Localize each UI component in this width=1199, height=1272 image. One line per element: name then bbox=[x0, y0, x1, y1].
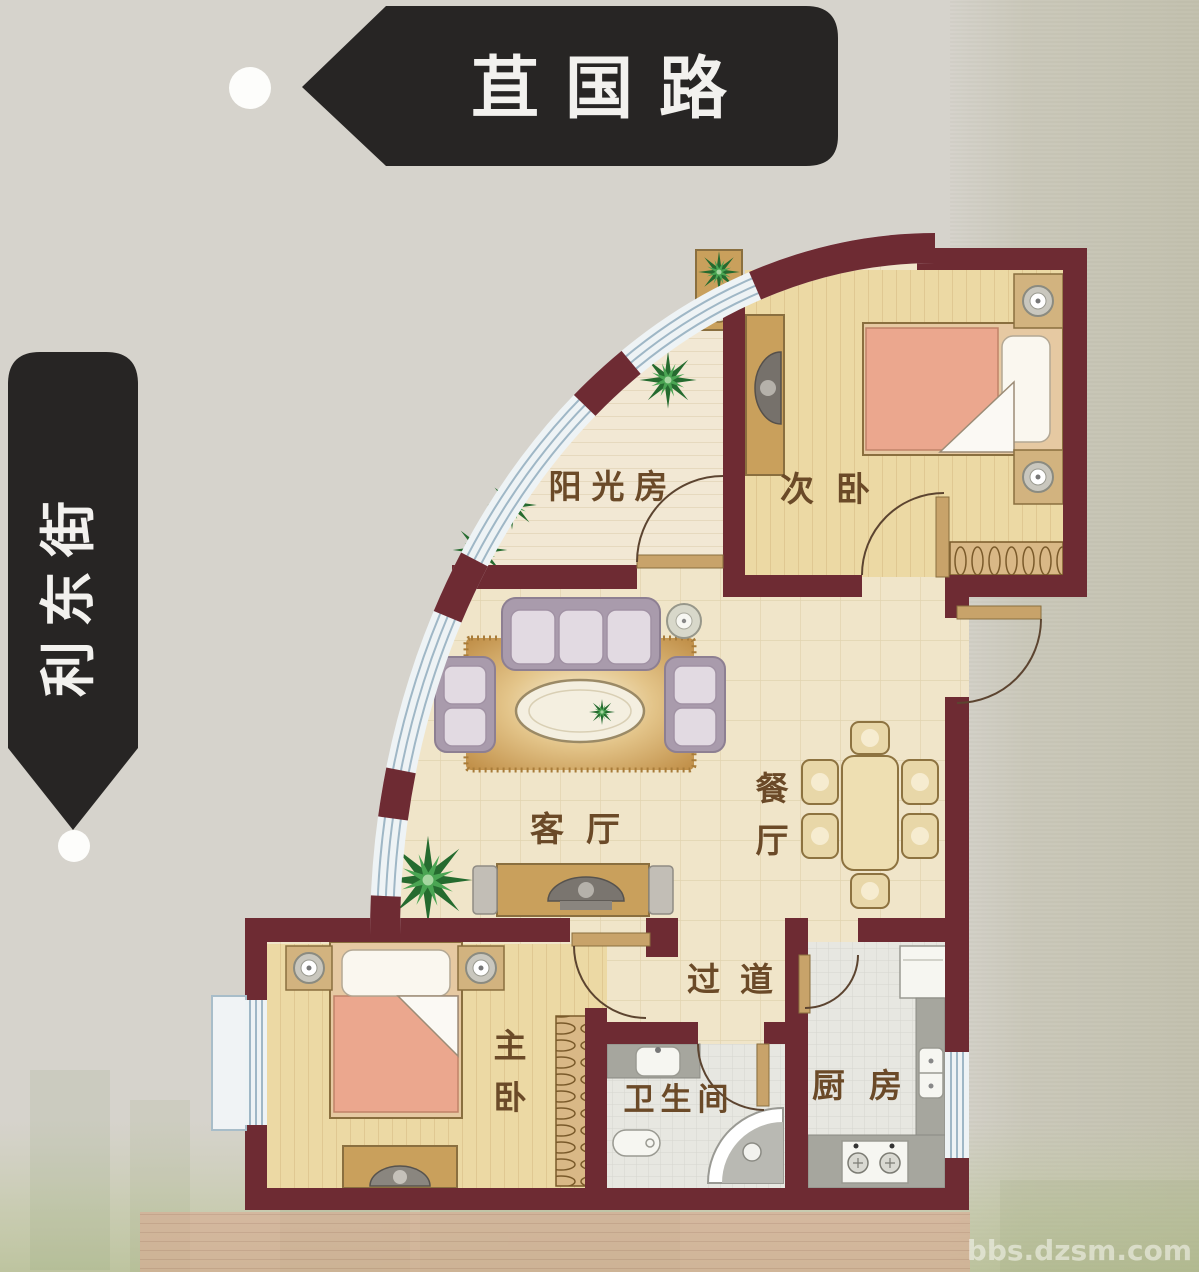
tv-cabinet-second-bedroom bbox=[746, 315, 784, 475]
wall-south bbox=[245, 1188, 969, 1210]
wall bbox=[945, 575, 1087, 597]
speaker-right bbox=[649, 866, 673, 914]
wall-master-east bbox=[585, 1008, 607, 1188]
faucet-icon bbox=[655, 1047, 661, 1053]
wall bbox=[1063, 248, 1087, 597]
room-label-second-bedroom: 次卧 bbox=[780, 470, 892, 510]
bed-master bbox=[330, 942, 462, 1118]
room-label-kitchen: 厨房 bbox=[812, 1066, 926, 1105]
sofa-three-seat bbox=[502, 598, 660, 670]
stove bbox=[842, 1141, 908, 1183]
wall bbox=[245, 935, 267, 1000]
dining-table bbox=[842, 756, 898, 870]
side-table bbox=[667, 604, 701, 638]
wall bbox=[945, 697, 969, 1052]
lamp-icon bbox=[294, 953, 324, 983]
wall bbox=[245, 1125, 267, 1210]
tv-stand-living bbox=[497, 864, 649, 916]
watermark: bbs.dzsm.com bbox=[967, 1234, 1192, 1267]
wall-sunroom-divider bbox=[723, 290, 745, 577]
floorplan-image: 苴国路 利东街 bbox=[0, 0, 1199, 1272]
sofa-left bbox=[435, 657, 495, 752]
wardrobe-second-bedroom bbox=[950, 542, 1063, 575]
wardrobe-master bbox=[556, 1016, 586, 1186]
wall bbox=[764, 1022, 785, 1044]
room-label-living-room: 客厅 bbox=[530, 810, 642, 850]
street-name-top: 苴国路 bbox=[471, 50, 753, 129]
wall bbox=[917, 248, 1087, 270]
sofa-right bbox=[665, 657, 725, 752]
wall bbox=[723, 575, 862, 597]
fridge bbox=[900, 946, 946, 998]
white-dot-top bbox=[229, 67, 271, 109]
tv-stand-master bbox=[343, 1146, 457, 1188]
white-dot-bottom bbox=[58, 830, 90, 862]
shower-drain-icon bbox=[743, 1143, 761, 1161]
room-label-corridor: 过道 bbox=[687, 960, 793, 999]
lamp-icon bbox=[466, 953, 496, 983]
street-banner-top: 苴国路 bbox=[302, 6, 838, 166]
exterior-pink-floor bbox=[140, 1212, 970, 1272]
lamp-icon bbox=[1023, 462, 1053, 492]
room-label-sunroom: 阳光房 bbox=[549, 467, 678, 506]
coffee-table bbox=[516, 680, 644, 742]
window-master-west bbox=[212, 996, 267, 1130]
street-name-left: 利东街 bbox=[37, 487, 102, 697]
wall-master-north bbox=[245, 918, 570, 942]
wall-bathroom-north bbox=[607, 1022, 698, 1044]
window-kitchen-east bbox=[945, 1052, 969, 1158]
street-banner-left: 利东街 bbox=[8, 352, 138, 830]
room-label-bathroom: 卫生间 bbox=[624, 1082, 735, 1118]
wall bbox=[858, 918, 969, 942]
background-right-texture bbox=[950, 0, 1199, 1272]
bed-second-bedroom bbox=[863, 323, 1063, 455]
lamp-icon bbox=[1023, 286, 1053, 316]
speaker-left bbox=[473, 866, 497, 914]
bathtub bbox=[613, 1130, 660, 1156]
wall-corner-corridor bbox=[646, 918, 678, 957]
